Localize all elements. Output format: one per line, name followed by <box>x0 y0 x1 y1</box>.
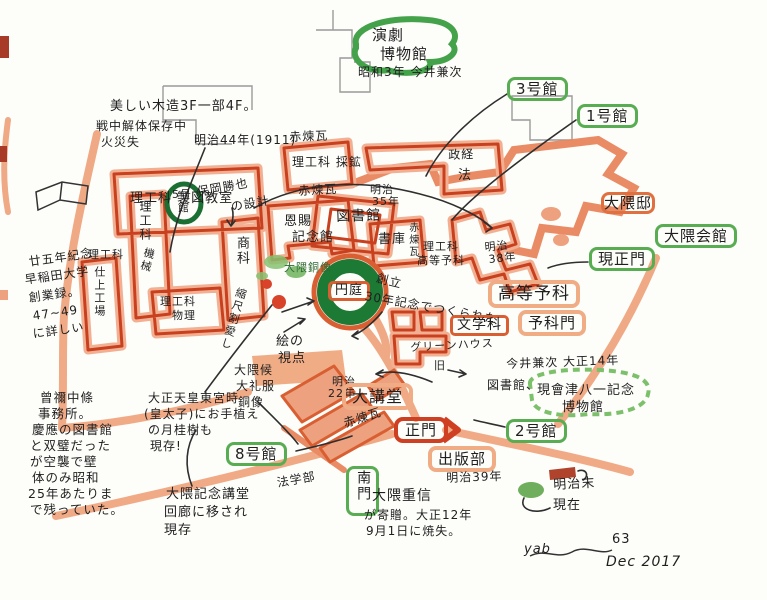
bldg-onshi-hall: 恩賜 <box>284 215 312 229</box>
note-corridor: 現存 <box>164 524 192 538</box>
bldg-higher-prep: 高等予科 <box>488 280 580 308</box>
note-laurel: 現存! <box>150 440 182 453</box>
note-meiji39: 明治39年 <box>446 470 503 485</box>
note-greenhouse-old: 旧 <box>434 360 446 372</box>
bubble-bldg5: 館 <box>178 202 190 214</box>
legend-present-label: 現在 <box>553 499 581 513</box>
note-corridor: 回廊に移され <box>164 506 248 520</box>
note-statue-dress: 銅像 <box>238 396 264 409</box>
bldg-finishing-shop: 仕上工場 <box>93 266 105 346</box>
legend-present-swatch <box>518 482 544 498</box>
note-sone: 事務所。 <box>38 407 92 421</box>
tree-scribble <box>256 272 268 280</box>
note-wooden: 美しい木造3F一部4F。 <box>110 100 258 114</box>
bldg-onshi-hall: 記念館 <box>292 231 334 245</box>
bldg-stacks: 書庫 <box>378 233 406 247</box>
bubble-bldg5: 5号 <box>172 189 192 201</box>
bldg-physics: 理工科 <box>160 296 196 308</box>
note-viewpoint: 視点 <box>278 352 306 366</box>
note-corridor: 大隈記念講堂 <box>166 488 250 502</box>
bubble-bldg1: 1号館 <box>577 104 638 128</box>
bldg-literature: 文学科 <box>450 315 509 336</box>
note-shigenobu: 9月1日に焼失。 <box>366 525 461 538</box>
note-imai: 図書館、 <box>487 379 539 392</box>
note-sone: と双璧だった <box>30 439 111 453</box>
note-shigenobu: 大隈重信 <box>372 489 432 504</box>
note-meiji44: 明治44年(1911) <box>194 134 296 147</box>
bldg-politics-econ: 政経 <box>448 148 474 162</box>
note-redbrick: 赤煉瓦 <box>406 222 417 270</box>
theatre-museum-label: 博物館 <box>380 46 428 62</box>
note-sone: が空襲で壁 <box>30 455 98 469</box>
note-laurel: (皇太子)にお手植え <box>144 408 259 421</box>
bubble-bldg8: 8号館 <box>226 442 287 466</box>
legend-meiji-label: 明治末 <box>553 477 596 493</box>
prep-gate: 予科門 <box>518 310 586 336</box>
note-wartime: 戦中解体保存中 <box>96 120 187 133</box>
bubble-current-gate: 現正門 <box>589 247 655 271</box>
bldg-sci-prep: 理工科 <box>423 241 459 253</box>
note-wartime: 火災失 <box>101 136 140 149</box>
bubble-aizu-museum: 博物館 <box>562 401 604 415</box>
note-okuma-statue: 大隈銅像 <box>284 262 332 274</box>
bldg-law: 法 <box>458 169 472 183</box>
note-sone: 25年あたりま <box>28 487 113 501</box>
bubble-bldg3: 3号館 <box>507 77 568 101</box>
signature-initials: yab <box>524 543 551 557</box>
bldg-library: 図書館 <box>336 208 381 225</box>
bldg-press: 出版部 <box>428 446 496 472</box>
signature-date: Dec 2017 <box>606 555 681 570</box>
note-redbrick: 赤煉瓦 <box>289 130 328 144</box>
note-sone: 曾禰中條 <box>40 391 94 405</box>
bubble-okuma-hall: 大隈会館 <box>655 224 737 248</box>
note-laurel: 大正天皇東宮時 <box>148 392 239 405</box>
note-redbrick: 赤煉瓦 <box>298 183 338 198</box>
note-sone: 慶應の図書館 <box>32 423 113 437</box>
bldg-commerce: 商科 <box>234 236 248 292</box>
bldg-physics: 物理 <box>172 310 196 322</box>
note-sone: 体のみ昭和 <box>32 471 100 485</box>
note-shigenobu: が寄贈。大正12年 <box>364 509 472 522</box>
note-viewpoint: 絵の <box>276 335 304 349</box>
bubble-aizu-museum: 現會津八一記念 <box>537 384 635 398</box>
bldg-sci-prep: 高等予科 <box>417 255 465 267</box>
bldg-mining: 理工科 採鉱 <box>292 156 362 169</box>
note-laurel: の月桂樹も <box>148 424 213 437</box>
bubble-okuma-residence: 大隈邸 <box>601 192 655 214</box>
note-statue-dress: 大隈候 <box>234 364 273 377</box>
note-statue-dress: 大礼服 <box>236 380 275 393</box>
signature-number: 63 <box>612 533 631 547</box>
note-sone: で残っていた。 <box>30 503 124 517</box>
bubble-bldg2: 2号館 <box>506 419 567 443</box>
theatre-museum-label: 演劇 <box>372 27 404 43</box>
note-meiji35: 35年 <box>372 196 400 208</box>
hand-drawn-campus-map: 演劇 博物館 昭和3年 今井兼次 3号館 1号館 美しい木造3F一部4F。 戦中… <box>0 0 767 600</box>
main-gate-label: 正門 <box>394 417 448 443</box>
theatre-museum-note: 昭和3年 今井兼次 <box>358 66 462 79</box>
